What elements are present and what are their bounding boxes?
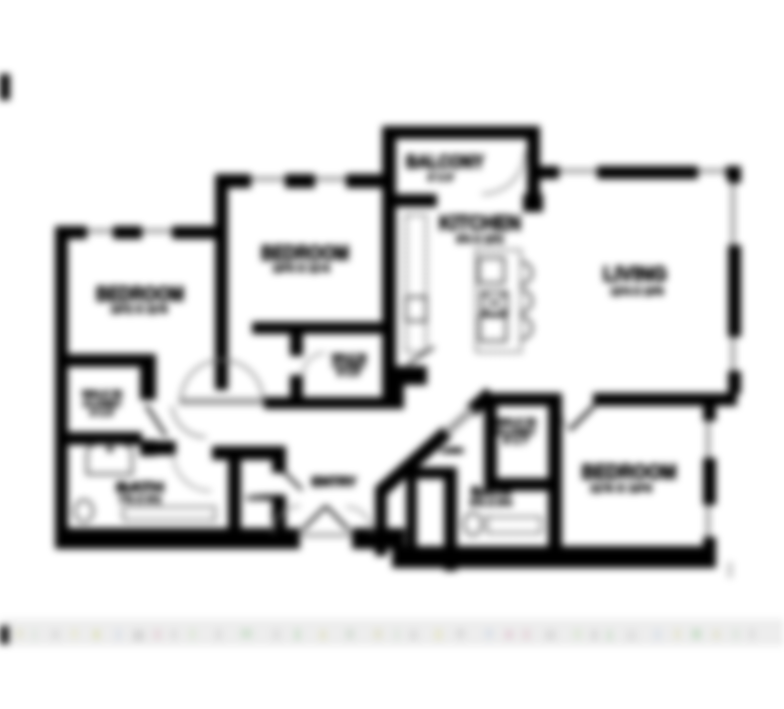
svg-text:6' X 5': 6' X 5' (337, 369, 360, 378)
svg-text:BATH: BATH (116, 479, 164, 495)
svg-text:10'2 X 11'6: 10'2 X 11'6 (111, 304, 168, 316)
svg-text:LIVING: LIVING (603, 263, 667, 286)
svg-text:LAUNDRY: LAUNDRY (247, 493, 283, 502)
svg-text:KITCHEN: KITCHEN (439, 212, 521, 235)
svg-text:BATH: BATH (471, 484, 511, 499)
svg-text:7'6 X 9'2: 7'6 X 9'2 (119, 495, 161, 506)
svg-text:BALCONY: BALCONY (406, 151, 485, 172)
svg-text:9'6 X 5'0: 9'6 X 5'0 (470, 498, 512, 509)
svg-text:BEDROOM: BEDROOM (261, 242, 349, 265)
svg-text:4' X 6': 4' X 6' (90, 408, 114, 418)
svg-text:ENTRY: ENTRY (312, 475, 358, 489)
svg-text:6' X 9': 6' X 9' (428, 173, 454, 184)
svg-text:12'4 X 13'6: 12'4 X 13'6 (611, 286, 664, 298)
svg-text:LINEN: LINEN (441, 446, 464, 455)
svg-text:BEDROOM: BEDROOM (96, 283, 184, 306)
svg-text:10'0 X 11'4: 10'0 X 11'4 (273, 263, 331, 275)
svg-text:5' X 7': 5' X 7' (503, 436, 528, 446)
svg-text:11'6 X 10'0: 11'6 X 10'0 (590, 483, 652, 495)
svg-text:9'0 X 13'2: 9'0 X 13'2 (457, 234, 504, 246)
svg-text:BEDROOM: BEDROOM (582, 461, 677, 484)
